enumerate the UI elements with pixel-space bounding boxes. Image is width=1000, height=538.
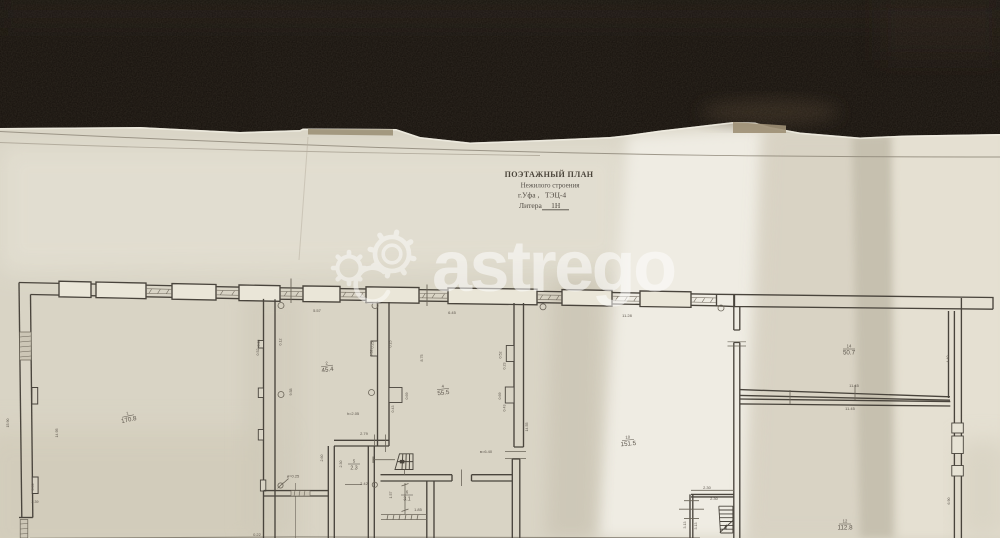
svg-text:11.45: 11.45 xyxy=(849,383,859,388)
svg-text:1.57: 1.57 xyxy=(389,492,393,499)
svg-text:4.40: 4.40 xyxy=(946,356,950,363)
svg-text:Нежилого строения: Нежилого строения xyxy=(521,182,581,190)
svg-text:55.5: 55.5 xyxy=(437,389,450,397)
svg-text:0.69: 0.69 xyxy=(405,393,409,400)
svg-text:0.15: 0.15 xyxy=(389,341,393,348)
svg-text:0.52: 0.52 xyxy=(256,349,260,356)
svg-text:8.75: 8.75 xyxy=(420,355,424,362)
svg-text:6.90: 6.90 xyxy=(947,498,951,505)
svg-text:50.7: 50.7 xyxy=(843,350,856,357)
svg-text:11.45: 11.45 xyxy=(845,406,855,411)
svg-text:2.60: 2.60 xyxy=(320,455,324,462)
svg-text:0.43: 0.43 xyxy=(503,405,507,412)
svg-text:ø=0.25: ø=0.25 xyxy=(287,474,300,479)
svg-text:3.13: 3.13 xyxy=(683,522,687,529)
svg-text:2.79: 2.79 xyxy=(360,431,369,436)
svg-text:15.90: 15.90 xyxy=(6,419,10,428)
svg-text:2.30: 2.30 xyxy=(703,485,712,490)
svg-text:2.42: 2.42 xyxy=(360,481,369,486)
svg-text:г.Уфа , ТЭЦ-4: г.Уфа , ТЭЦ-4 xyxy=(518,191,566,200)
svg-text:h=2.05: h=2.05 xyxy=(347,411,360,416)
svg-text:2.3: 2.3 xyxy=(350,466,357,472)
svg-text:14.55: 14.55 xyxy=(525,423,529,432)
svg-text:0.69: 0.69 xyxy=(31,484,35,491)
svg-text:1.85: 1.85 xyxy=(414,507,423,512)
svg-text:11.28: 11.28 xyxy=(622,313,632,318)
svg-text:0.12: 0.12 xyxy=(279,339,283,346)
svg-text:3.13: 3.13 xyxy=(694,523,698,530)
svg-text:14: 14 xyxy=(847,344,852,349)
svg-text:9.58: 9.58 xyxy=(289,389,293,396)
svg-text:0.22: 0.22 xyxy=(257,340,261,347)
svg-text:0.22: 0.22 xyxy=(253,532,262,537)
svg-text:0.43: 0.43 xyxy=(391,406,395,413)
svg-text:2.30: 2.30 xyxy=(339,461,343,468)
svg-text:2.39: 2.39 xyxy=(32,500,39,504)
svg-text:Литера 1Н: Литера 1Н xyxy=(519,201,561,210)
svg-text:5.57: 5.57 xyxy=(313,308,322,313)
svg-text:0.52: 0.52 xyxy=(370,350,374,357)
svg-text:0.23: 0.23 xyxy=(503,363,507,370)
svg-text:2.30: 2.30 xyxy=(710,496,719,501)
svg-text:в=6.40: в=6.40 xyxy=(480,449,493,454)
svg-text:astrego: astrego xyxy=(432,227,675,307)
svg-text:112.8: 112.8 xyxy=(837,525,853,532)
svg-text:3.1: 3.1 xyxy=(403,497,410,503)
svg-text:151.5: 151.5 xyxy=(620,440,637,448)
svg-text:6.45: 6.45 xyxy=(448,310,457,315)
svg-text:0.52: 0.52 xyxy=(499,352,503,359)
svg-text:ПОЭТАЖНЫЙ ПЛАН: ПОЭТАЖНЫЙ ПЛАН xyxy=(505,170,594,179)
svg-text:0.69: 0.69 xyxy=(498,393,502,400)
svg-text:14.95: 14.95 xyxy=(55,429,59,438)
svg-text:0.25: 0.25 xyxy=(371,342,375,349)
svg-text:12: 12 xyxy=(843,519,848,524)
